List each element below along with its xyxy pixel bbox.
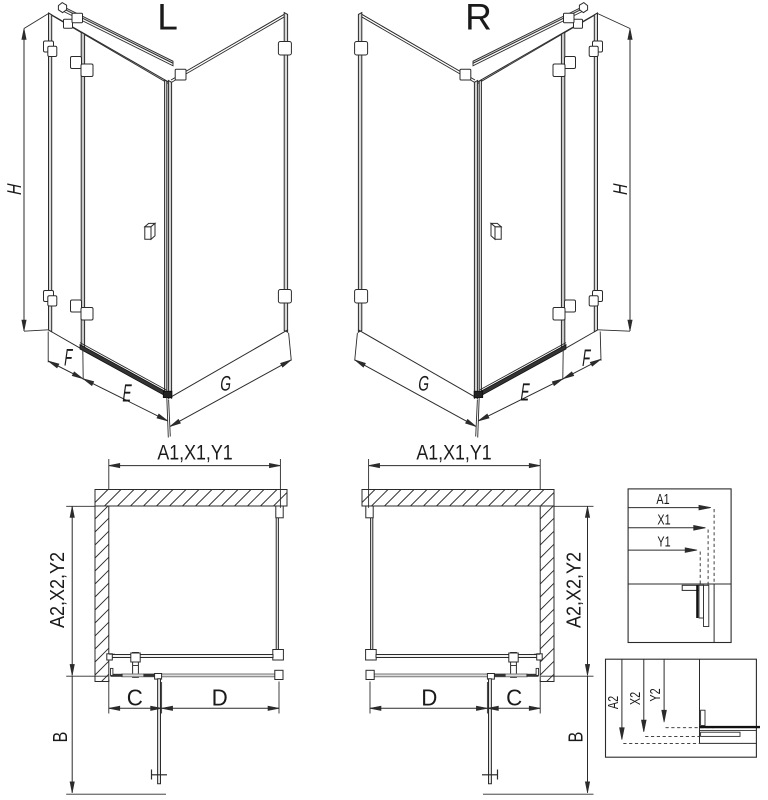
svg-text:B: B xyxy=(50,732,72,743)
svg-text:Y2: Y2 xyxy=(646,688,663,701)
svg-text:A1: A1 xyxy=(656,490,669,507)
svg-text:D: D xyxy=(421,684,437,711)
svg-text:C: C xyxy=(506,684,522,711)
svg-text:L: L xyxy=(157,0,178,38)
svg-text:Y1: Y1 xyxy=(657,533,670,550)
svg-text:X2: X2 xyxy=(626,692,643,705)
svg-text:D: D xyxy=(212,684,228,711)
svg-text:A2,X2,Y2: A2,X2,Y2 xyxy=(564,552,586,628)
svg-text:A2,X2,Y2: A2,X2,Y2 xyxy=(47,552,69,628)
svg-text:A1,X1,Y1: A1,X1,Y1 xyxy=(416,441,491,465)
svg-text:A2: A2 xyxy=(604,696,621,709)
svg-text:A1,X1,Y1: A1,X1,Y1 xyxy=(157,441,232,465)
svg-text:C: C xyxy=(127,684,143,711)
svg-text:R: R xyxy=(465,0,492,38)
svg-text:X1: X1 xyxy=(657,511,670,528)
svg-text:B: B xyxy=(565,732,587,743)
